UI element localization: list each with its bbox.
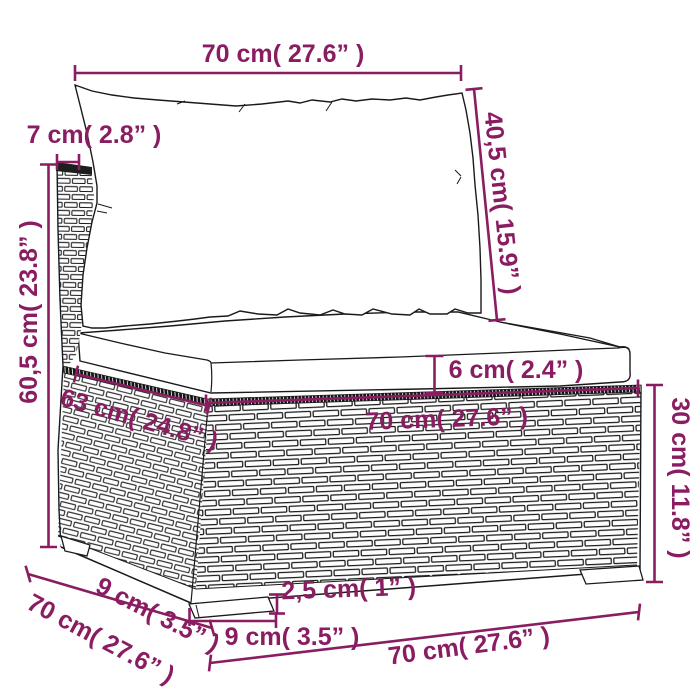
svg-text:2,5 cm( 1” ): 2,5 cm( 1” )	[281, 573, 417, 606]
svg-text:60,5 cm( 23.8” ): 60,5 cm( 23.8” )	[15, 220, 43, 403]
svg-text:30 cm( 11.8” ): 30 cm( 11.8” )	[666, 397, 694, 558]
svg-text:6 cm( 2.4” ): 6 cm( 2.4” )	[449, 356, 584, 384]
svg-text:70 cm( 27.6” ): 70 cm( 27.6” )	[202, 40, 365, 68]
svg-text:70 cm( 27.6” ): 70 cm( 27.6” )	[365, 402, 528, 436]
svg-text:7 cm( 2.8” ): 7 cm( 2.8” )	[27, 121, 162, 149]
